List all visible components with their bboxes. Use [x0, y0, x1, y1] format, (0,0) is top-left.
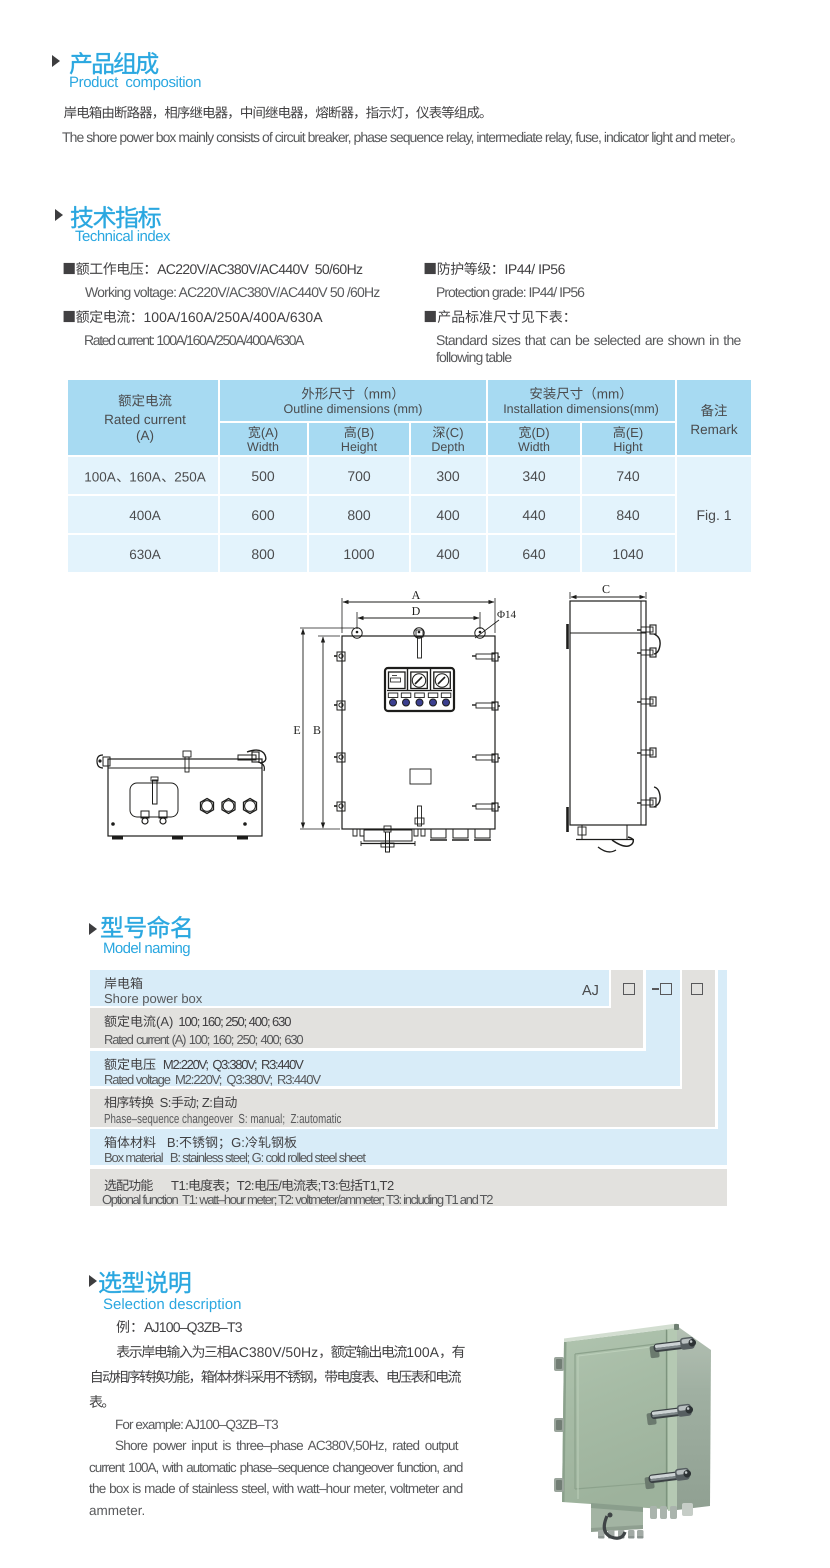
svg-text:D: D	[412, 604, 421, 618]
svg-text:E: E	[293, 723, 300, 737]
svg-text:A: A	[412, 588, 421, 602]
svg-text:C: C	[602, 582, 610, 596]
svg-text:B: B	[313, 723, 321, 737]
svg-text:Φ14: Φ14	[497, 609, 517, 621]
